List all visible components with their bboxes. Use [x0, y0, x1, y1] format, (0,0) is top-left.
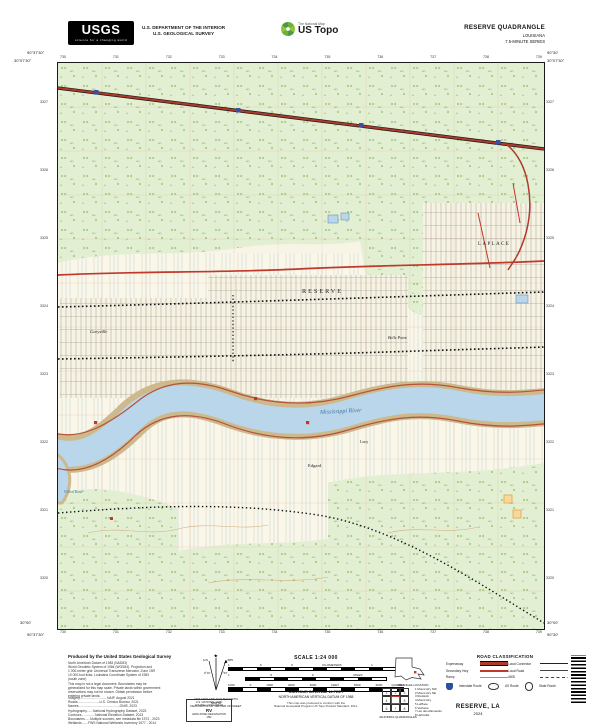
list-item: 735 [324, 55, 330, 59]
standard-line2: National Geospatial Program US Topo Prod… [228, 705, 404, 709]
corner-coord-top-left-lat: 30°07'30" [14, 58, 31, 63]
sheet-name: RESERVE, LA [430, 704, 526, 710]
list-item: 3322 [40, 440, 48, 444]
list-item: 3321 [40, 508, 48, 512]
barcode [571, 655, 586, 703]
corner-coord-bottom-right-lat: 30°00' [547, 620, 558, 625]
list-item: 733 [219, 55, 225, 59]
list-item: 3000 [310, 683, 317, 687]
adj-cell-5: 5 [400, 696, 409, 704]
list-item: .5 [270, 673, 273, 677]
utm-ticks-right: 33273326332533243323332233213320 [546, 100, 554, 580]
rc-local-sample [540, 670, 568, 671]
label-lucy: Lucy [360, 439, 368, 444]
corner-coord-top-right-lon: 90°30' [547, 50, 558, 55]
svg-text:GN: GN [203, 658, 208, 662]
us-route-label: US Route [505, 684, 519, 688]
list-item: FEET [331, 683, 339, 687]
list-item: MILES [353, 673, 362, 677]
corner-coord-bottom-left-lon: 90°37'30" [27, 632, 44, 637]
usgs-topo-sheet: USGS science for a changing world U.S. D… [0, 0, 600, 725]
list-item: .5 [259, 663, 262, 667]
svg-text:0°16': 0°16' [204, 671, 211, 675]
rc-connector-sample [540, 663, 568, 665]
contour-interval: CONTOUR INTERVAL 10 FEET [228, 690, 404, 694]
label-laplace: LAPLACE [478, 242, 510, 247]
rc-expressway-sample [480, 661, 508, 666]
label-reserve: RESERVE [302, 288, 343, 295]
road-classification: ROAD CLASSIFICATION Expressway Local Con… [446, 654, 564, 691]
list-item: 736 [377, 55, 383, 59]
scale-bar-miles [245, 677, 387, 682]
label-edgard: Edgard [308, 463, 322, 468]
quadrangle-location: QUADRANGLE LOCATION [382, 656, 438, 687]
svg-text:★: ★ [214, 654, 219, 660]
list-item: 3321 [546, 508, 554, 512]
rc-connector-label: Local Connector [508, 662, 540, 666]
quad-series: 7.5-MINUTE SERIES [345, 39, 545, 44]
list-item: 1 [371, 663, 373, 667]
adjoining-quadrangles: 1 2 3 4 5 6 7 8 1 Mount Airy NW2 Mount A… [382, 688, 409, 712]
usng-zone: 15R [187, 716, 231, 719]
rc-ramp-label: Ramp [446, 675, 480, 679]
scale-block: SCALE 1:24 000 1.50KILOMETERS12 1.50MILE… [228, 655, 404, 692]
adj-cell-6: 6 [382, 704, 391, 712]
list-item: 732 [166, 55, 172, 59]
rc-expressway-label: Expressway [446, 662, 480, 666]
rc-secondary-sample [480, 670, 508, 672]
label-belle-point: Belle Point [388, 335, 408, 340]
list-item: 1000 [266, 683, 273, 687]
list-item: 0 [250, 683, 252, 687]
list-item: 1 [228, 663, 230, 667]
list-item: 737 [430, 55, 436, 59]
rc-local-label: Local Road [508, 669, 540, 673]
list-item: 3320 [40, 576, 48, 580]
scale-bar-km [228, 667, 404, 672]
rc-4wd-sample [540, 677, 568, 678]
ustopo-pinwheel-icon [281, 22, 295, 36]
list-item: 3326 [40, 168, 48, 172]
dept-line2: U.S. GEOLOGICAL SURVEY [142, 31, 225, 37]
us-route-shield-icon [488, 683, 499, 691]
sheet-year: 2024 [430, 711, 526, 716]
list-item: 5000 [354, 683, 361, 687]
contour-caption: CONTOUR INTERVAL 10 FEET NORTH AMERICAN … [228, 690, 404, 709]
usgs-logo-tagline: science for a changing world [68, 38, 134, 42]
louisiana-outline [393, 656, 427, 682]
list-item: 3326 [546, 168, 554, 172]
adj-cell-4: 4 [382, 696, 391, 704]
list-item: 3324 [546, 304, 554, 308]
list-item: 739 [536, 55, 542, 59]
list-item: Wetlands.......FWS National Wetlands Inv… [68, 721, 238, 725]
list-item: 1000 [228, 683, 235, 687]
list-item: 3327 [546, 100, 554, 104]
utm-ticks-left: 33273326332533243323332233213320 [40, 100, 48, 580]
svg-text:1°03': 1°03' [221, 671, 228, 675]
woods-southeast [328, 463, 544, 629]
list-item: 3327 [40, 100, 48, 104]
adj-cell-8: 8 [400, 704, 409, 712]
ustopo-logo: The National Map US Topo [281, 22, 338, 36]
sheet-name-block: RESERVE, LA 2024 [430, 704, 526, 716]
usgs-logo: USGS science for a changing world [68, 21, 134, 45]
list-item: 731 [113, 55, 119, 59]
list-item: 3325 [546, 236, 554, 240]
rc-4wd-label: 4WD [508, 675, 540, 679]
scale-title: SCALE 1:24 000 [228, 655, 404, 661]
adj-cell-7: 7 [391, 704, 400, 712]
state-route-shield-icon [525, 682, 534, 691]
adjoining-caption: ADJOINING QUADRANGLES [376, 715, 420, 719]
rc-ramp-sample [480, 677, 508, 678]
list-item: KILOMETERS [322, 663, 341, 667]
rc-secondary-label: Secondary Hwy [446, 669, 480, 673]
usng-box: U.S. NATIONAL GRID 100,000-m SQUARE ID R… [186, 699, 232, 722]
list-item: 0 [291, 663, 293, 667]
list-item: 734 [272, 55, 278, 59]
vertical-datum: NORTH AMERICAN VERTICAL DATUM OF 1988 [228, 695, 404, 699]
quad-state: LOUISIANA [345, 33, 545, 38]
label-garyville: Garyville [90, 329, 107, 334]
usgs-logo-text: USGS [82, 22, 121, 37]
adj-cell-1: 1 [382, 688, 391, 696]
list-item: 2000 [288, 683, 295, 687]
list-item: 3322 [546, 440, 554, 444]
interstate-route-label: Interstate Route [459, 684, 482, 688]
adjoining-grid: 1 2 3 4 5 6 7 8 [382, 688, 409, 712]
department-heading: U.S. DEPARTMENT OF THE INTERIOR U.S. GEO… [142, 25, 225, 37]
road-classification-title: ROAD CLASSIFICATION [446, 654, 564, 659]
quad-title-block: RESERVE QUADRANGLE LOUISIANA 7.5-MINUTE … [345, 24, 545, 44]
list-item: 3325 [40, 236, 48, 240]
list-item: 0 [312, 673, 314, 677]
state-route-label: State Route [539, 684, 556, 688]
corner-coord-top-right-lat: 30°07'30" [547, 58, 564, 63]
corner-coord-bottom-left-lat: 30°00' [20, 620, 31, 625]
list-item: 3323 [546, 372, 554, 376]
list-item: 3320 [546, 576, 554, 580]
list-item: 1 [228, 673, 230, 677]
adj-cell-3: 3 [400, 688, 409, 696]
topo-map-svg: RESERVE Garyville LAPLACE Belle Point Mi… [58, 63, 544, 629]
quad-title: RESERVE QUADRANGLE [345, 24, 545, 31]
utm-ticks-top: 730731732733734735736737738739 [60, 55, 542, 59]
ustopo-brand: US Topo [298, 26, 338, 36]
list-item: 3324 [40, 304, 48, 308]
woods-southwest [58, 489, 178, 629]
adj-cell-2: 2 [391, 688, 400, 696]
corner-coord-top-left-lon: 90°37'30" [27, 50, 44, 55]
map-area: RESERVE Garyville LAPLACE Belle Point Mi… [57, 62, 545, 630]
adj-cell-center [391, 696, 400, 704]
woods-south-center [178, 537, 338, 629]
list-item: 730 [60, 55, 66, 59]
label-willow-bend: Willow Bend [64, 490, 82, 494]
list-item: 738 [483, 55, 489, 59]
corner-coord-bottom-right-lon: 90°30' [547, 632, 558, 637]
list-item: 3323 [40, 372, 48, 376]
interstate-shield-icon [446, 683, 453, 690]
